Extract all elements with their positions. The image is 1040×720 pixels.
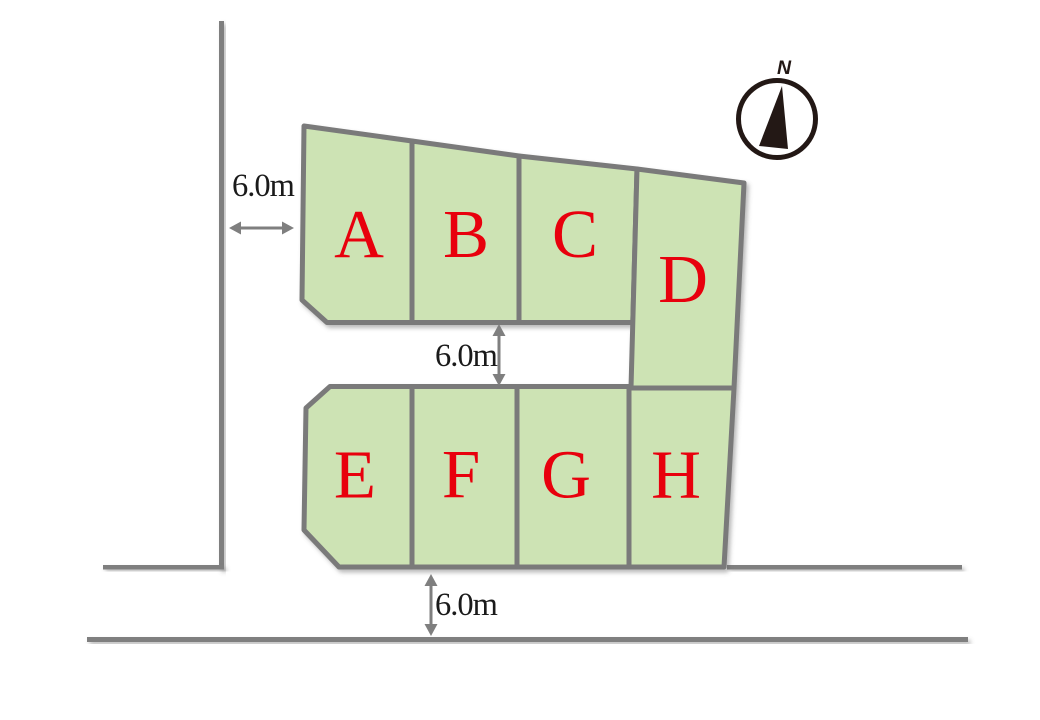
svg-text:C: C — [552, 196, 598, 272]
svg-text:B: B — [443, 196, 489, 272]
svg-text:E: E — [334, 437, 376, 513]
svg-text:6.0m: 6.0m — [435, 338, 498, 374]
svg-text:D: D — [658, 241, 708, 317]
svg-text:H: H — [651, 437, 701, 513]
svg-text:G: G — [541, 437, 591, 513]
svg-text:N: N — [777, 57, 792, 79]
svg-text:A: A — [334, 196, 384, 272]
svg-text:F: F — [442, 437, 480, 513]
svg-text:6.0m: 6.0m — [435, 587, 498, 623]
svg-text:6.0m: 6.0m — [232, 168, 295, 204]
